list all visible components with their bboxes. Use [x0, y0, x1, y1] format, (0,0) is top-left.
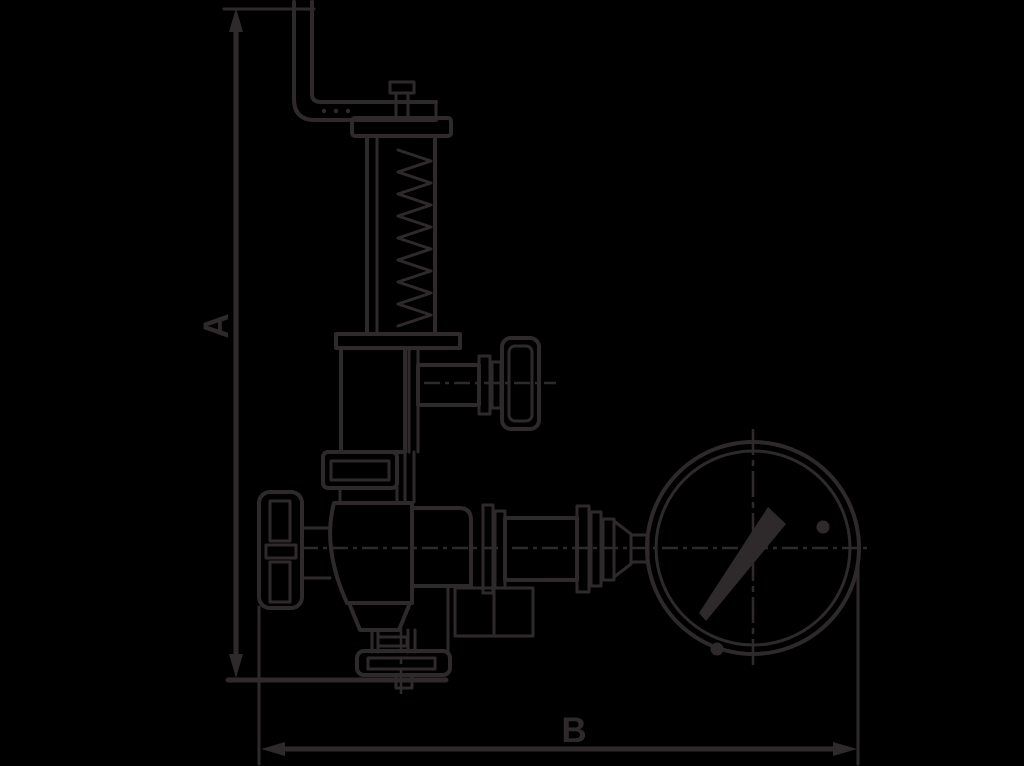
arrow-left-icon [261, 742, 285, 756]
handwheel [259, 492, 330, 608]
screw-stem [396, 93, 408, 119]
inlet-neck-tie [378, 637, 407, 646]
nut-step [340, 488, 397, 503]
gauge-dial-dot [817, 521, 830, 534]
gauge-pipe [302, 505, 872, 593]
spring-housing [367, 136, 435, 334]
screw-tip [390, 82, 414, 93]
lever-knurl-dot [322, 109, 326, 113]
lifting-lever [294, 2, 436, 120]
diagram-canvas: A B [0, 0, 1024, 766]
bonnet [336, 334, 460, 452]
bonnet-top-flange [336, 334, 460, 348]
dimension-a-label: A [197, 313, 236, 338]
knob-neck [418, 365, 479, 405]
handwheel-window-top [270, 501, 290, 541]
arrow-right-icon [833, 742, 857, 756]
pipe-union-ring [603, 519, 614, 580]
body-taper [349, 603, 410, 630]
spring-coils [398, 150, 431, 326]
dimension-b: B [259, 556, 858, 764]
arrow-down-icon [229, 654, 243, 678]
gauge-needle [699, 507, 786, 621]
nut-face [331, 461, 389, 480]
bonnet-front [341, 348, 405, 452]
lever-knurl-dot [334, 109, 338, 113]
valve-technical-drawing: A B [0, 0, 1024, 766]
test-knob [418, 338, 556, 429]
dimension-b-label: B [561, 711, 586, 750]
knob-collar [492, 362, 501, 408]
body-outline [330, 503, 412, 603]
lever-inner-edge [312, 2, 436, 102]
arrow-up-icon [229, 8, 243, 32]
lever-knurl-dot [346, 109, 350, 113]
nut-outline [323, 452, 397, 488]
handwheel-hub [266, 545, 296, 558]
union-nut [323, 452, 414, 503]
gauge-dial-dot [711, 643, 724, 656]
handwheel-window-bottom [270, 562, 290, 602]
valve-body [330, 503, 533, 694]
